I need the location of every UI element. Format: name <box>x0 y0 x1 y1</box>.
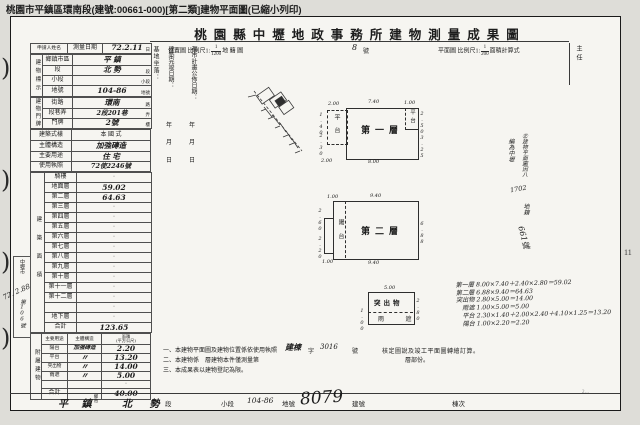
punch-hole-icon: ) <box>1 168 10 192</box>
row-label: 使用執照 <box>31 162 72 172</box>
row-label: 鄉鎮市區 <box>43 55 73 66</box>
attached-structure: 加強磚造 <box>68 345 102 354</box>
punch-hole-icon: ) <box>1 56 10 80</box>
plan-scale-label: 平面圖 比例尺1: <box>438 48 480 54</box>
survey-date-table: 申請人姓名 測量日期 72.2.11日 <box>30 43 152 54</box>
floor-value: · <box>77 293 152 303</box>
row-value: 104-86 <box>97 86 126 95</box>
row-label: 段 <box>43 66 73 76</box>
attached-structure <box>68 380 102 388</box>
first-floor-left-annex-label: 平台 <box>332 114 341 140</box>
building-info-table: 建築式樣 本 國 式 主體構造 加強磚造 主要用途 住 宅 使用執照 72使22… <box>30 129 151 172</box>
floor-label: 第十二層 <box>45 293 77 303</box>
floor-label: 第十一層 <box>45 283 77 293</box>
row-label: 主要用途 <box>31 152 72 162</box>
floor-label: 騎樓 <box>45 173 77 183</box>
footer-section: 北 勢 <box>122 395 166 410</box>
floor-value: · <box>77 273 152 283</box>
attached-structure: 〃 <box>68 353 102 362</box>
attached-usage: 突出物 <box>42 362 68 371</box>
floor-value: · <box>77 203 152 213</box>
left-info-panel: 申請人姓名 測量日期 72.2.11日 建物標示 鄉鎮市區 平 鎮 段 北 勢段… <box>30 43 148 400</box>
location-map-sketch <box>228 85 324 163</box>
chief-label: 主任 <box>574 45 583 63</box>
chief-column-divider <box>569 43 570 85</box>
attached-area: · <box>102 380 151 388</box>
floor-label: 第七層 <box>45 243 77 253</box>
door-plate-table: 建物門牌 街路 環南路 段巷弄 2段201巷弄 門牌 2號樓 <box>30 97 152 129</box>
dim-label: 8.00 <box>368 159 379 165</box>
floor-value: · <box>77 213 152 223</box>
note-1: 一、本建物平面圖及建物位置係依使用執照 <box>163 345 277 354</box>
dim-label: 1.00 <box>404 100 415 106</box>
attached-usage: 陽台 <box>42 345 68 354</box>
row-value: 平 鎮 <box>103 55 121 64</box>
year-label: 年 <box>166 120 172 129</box>
attached-building-table: 附屬建物 主要用途 主體構造 面積(平方公尺) 陽台加強磚造2.20 平台〃13… <box>30 333 151 400</box>
floor-value: · <box>77 233 152 243</box>
survey-date-label: 測量日期 <box>68 44 103 54</box>
footer-section-unit: 段 <box>165 398 172 408</box>
row-value: 72使2246號 <box>72 162 151 172</box>
floor-value: · <box>77 243 152 253</box>
row-label: 建築式樣 <box>31 130 72 141</box>
floor-value: · <box>77 263 152 273</box>
scale-fraction: 1200 <box>481 45 489 57</box>
col-header: 面積(平方公尺) <box>102 334 151 345</box>
dim-label: 2.30 <box>318 133 324 157</box>
month-label: 月 <box>166 137 172 146</box>
attached-group: 附屬建物 <box>31 334 42 400</box>
door-plate-group: 建物門牌 <box>31 98 43 129</box>
row-value: 北 勢 <box>103 66 121 75</box>
dim-label: 7.40 <box>368 99 379 105</box>
row-value: 住 宅 <box>72 152 151 162</box>
building-mark-group: 建物標示 <box>31 55 43 97</box>
location-map-scale: 位置圖 比例尺1:11200地 籍 圖 <box>168 45 243 57</box>
floor-value: · <box>77 313 152 323</box>
punch-hole-icon: ) <box>1 250 10 274</box>
row-label: 街路 <box>43 98 73 109</box>
attached-area: 2.20 <box>102 345 151 354</box>
floor-label: 第三層 <box>45 203 77 213</box>
margin-note-col3: 地籍 <box>521 203 530 215</box>
floor-value: · <box>77 303 152 313</box>
receipt-number: 第106號 <box>18 299 26 328</box>
footer-corner-mark: 2… <box>582 390 590 395</box>
protrusion-dashed-divider <box>368 312 413 313</box>
floor-label <box>45 303 77 313</box>
dim-label: 2.60 <box>317 208 323 232</box>
month-label: 月 <box>189 137 195 146</box>
area-calc-label: 面積計算式 <box>490 48 520 54</box>
note-1-hand-word: 建棟 <box>285 342 301 353</box>
survey-date-unit: 日 <box>146 48 151 53</box>
dim-label: 1.00 <box>327 194 338 200</box>
second-floor-annex <box>324 218 334 254</box>
floor-label: 第二層 <box>45 193 77 203</box>
attached-area: 13.20 <box>102 353 151 362</box>
col-header: 主體構造 <box>68 334 102 345</box>
first-floor-right-annex-label: 平台 <box>408 109 416 126</box>
attached-structure: 〃 <box>68 371 102 380</box>
year-label: 年 <box>189 120 195 129</box>
col-header: 主要用途 <box>42 334 68 345</box>
footer-parcel-number: 104-86 <box>247 396 273 405</box>
day-label: 日 <box>189 155 195 164</box>
floor-label: 第五層 <box>45 223 77 233</box>
row-label: 門牌 <box>43 119 73 129</box>
footer-building-number: 8079 <box>299 387 344 410</box>
floor-plan-scale: 平面圖 比例尺1:1200面積計算式 <box>438 45 520 57</box>
floor-label: 第十層 <box>45 273 77 283</box>
footer-city-unit: 鄉市 <box>93 394 99 403</box>
protrusion-label: 突出物 <box>374 297 403 307</box>
scale-fraction: 11200 <box>211 45 221 57</box>
dim-label: 2.00 <box>321 158 332 164</box>
dim-label: 9.40 <box>368 260 379 266</box>
row-value: 加強磚造 <box>72 141 151 152</box>
sheet-number-unit: 號 <box>363 46 369 55</box>
note-1-no: 號 <box>352 346 358 355</box>
floor-label: 地下層 <box>45 313 77 323</box>
floor-label: 第六層 <box>45 233 77 243</box>
cadastral-sheet-number: 8 <box>352 43 357 52</box>
floor-area-group: 建築面積 <box>31 173 45 333</box>
footer-parcel-unit: 地號 <box>282 398 295 408</box>
floor-value: · <box>77 253 152 263</box>
plan-publish-date-label: 都市計畫公佈日期： <box>189 46 198 100</box>
row-label: 段巷弄 <box>43 109 73 119</box>
floor-total-value: 123.65 <box>77 323 152 333</box>
note-1-hand-number: 3016 <box>320 343 338 351</box>
first-floor-label: 第一層 <box>361 123 403 136</box>
dim-label: 3.25 <box>419 135 425 159</box>
receipt-box: 中壢市 第106號 <box>13 256 31 338</box>
row-value: 2段201巷 <box>96 109 127 117</box>
dim-label: 2.50 <box>419 111 425 135</box>
floor-value: · <box>77 283 152 293</box>
second-floor-dashed-divider <box>345 201 346 258</box>
row-label: 小段 <box>43 76 73 86</box>
floor-value: 64.63 <box>77 193 152 203</box>
dim-label: 9.40 <box>370 193 381 199</box>
attached-usage <box>42 380 68 388</box>
dim-label: 2.80 <box>415 298 421 322</box>
note-1-mid: 字 <box>308 346 314 355</box>
attached-usage: 平台 <box>42 353 68 362</box>
floor-label: 地面層 <box>45 183 77 193</box>
dim-label: 2.00 <box>328 101 339 107</box>
site-location-label: 基地坐落： <box>151 46 160 81</box>
attached-usage: 雨遮 <box>42 371 68 380</box>
row-label: 地號 <box>43 86 73 97</box>
row-value: 環南 <box>105 98 120 107</box>
day-label: 日 <box>166 155 172 164</box>
floor-label: 第八層 <box>45 253 77 263</box>
floor-value: · <box>77 173 152 183</box>
dim-label: 5.00 <box>384 285 395 291</box>
dim-label: 1.00 <box>359 308 365 332</box>
attached-structure: 〃 <box>68 362 102 371</box>
punch-hole-icon: ) <box>1 326 10 350</box>
floor-area-table: 建築面積 騎樓 · 地面層59.02 第二層64.63 第三層· 第四層· 第五… <box>30 172 152 333</box>
footer-building-number-unit: 建號 <box>352 398 365 408</box>
dim-label: 2.20 <box>317 236 323 260</box>
building-mark-table: 建物標示 鄉鎮市區 平 鎮 段 北 勢段 小段 小段 地號 104-86地號 <box>30 54 152 97</box>
floor-label: 第九層 <box>45 263 77 273</box>
title-divider <box>150 41 569 42</box>
footer-unit-label: 棟次 <box>452 398 465 408</box>
survey-date-value: 72.2.11 <box>111 44 142 53</box>
completion-date-label: 建築完竣日期： <box>166 46 175 88</box>
note-3: 三、本成果表以建物登記為限。 <box>163 365 247 374</box>
page-number: 11 <box>624 248 632 257</box>
dim-label: 1.00 <box>322 259 333 265</box>
floor-value: · <box>77 223 152 233</box>
attached-area: 14.00 <box>102 362 151 371</box>
margin-note-col2: 編為中壢 <box>506 138 515 162</box>
second-floor-label: 第二層 <box>361 224 403 237</box>
row-label: 主體構造 <box>31 141 72 152</box>
row-value: 2號 <box>106 119 119 128</box>
floor-total-label: 合計 <box>45 323 77 333</box>
area-calculation-block: 第一層 8.00×7.40＋2.40×2.80＝59.02 第二層 6.88×9… <box>455 278 611 328</box>
receipt-office: 中壢市 <box>18 259 25 274</box>
scanned-survey-document: 桃園市平鎮區環南段(建號:00661-000)[第二類]建物平面圖(已縮小列印)… <box>0 0 640 425</box>
cadastral-map-label: 地 籍 圖 <box>222 48 243 54</box>
note-2-tail: 層部份。 <box>405 355 429 364</box>
applicant-label: 申請人姓名 <box>31 44 68 54</box>
note-1-tail: 核定圖說及竣工平面圖轉繪訂算。 <box>382 346 480 355</box>
window-caption: 桃園市平鎮區環南段(建號:00661-000)[第二類]建物平面圖(已縮小列印) <box>6 2 302 16</box>
second-floor-annex-label: 陽台 <box>336 219 345 247</box>
row-value: 本 國 式 <box>72 130 151 141</box>
dim-label: 6.88 <box>419 221 425 245</box>
margin-note-col1: ㊣建物平面圖因八 <box>520 133 528 177</box>
attached-area: 5.00 <box>102 371 151 380</box>
footer-city: 平 鎮 <box>58 395 96 410</box>
floor-value: 59.02 <box>77 183 152 193</box>
note-2: 二、本建物係 層建物本件僅測量第 <box>163 355 259 364</box>
footer-subsection-label: 小段 <box>221 398 234 408</box>
floor-label: 第四層 <box>45 213 77 223</box>
